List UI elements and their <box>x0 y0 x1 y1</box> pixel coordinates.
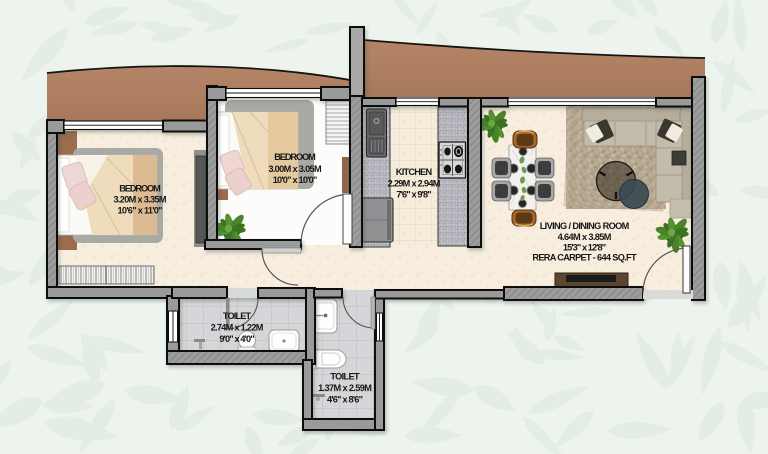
svg-text:3.20M x 3.35M: 3.20M x 3.35M <box>114 194 167 204</box>
svg-text:LIVING / DINING ROOM: LIVING / DINING ROOM <box>540 221 630 231</box>
svg-text:RERA CARPET - 644 SQ.FT: RERA CARPET - 644 SQ.FT <box>532 253 637 263</box>
svg-text:2.29M x 2.94M: 2.29M x 2.94M <box>388 178 441 188</box>
svg-text:TOILET: TOILET <box>330 372 360 382</box>
svg-text:15'3" x 12'8": 15'3" x 12'8" <box>563 242 606 252</box>
svg-text:10'6" x 11'0": 10'6" x 11'0" <box>118 205 163 215</box>
svg-text:3.00M x 3.05M: 3.00M x 3.05M <box>268 164 322 174</box>
svg-text:4.64M x 3.85M: 4.64M x 3.85M <box>558 232 612 242</box>
svg-text:10'0" x 10'0": 10'0" x 10'0" <box>273 175 318 185</box>
svg-text:9'0" x 4'0": 9'0" x 4'0" <box>219 334 254 344</box>
svg-text:KITCHEN: KITCHEN <box>396 167 433 177</box>
svg-text:4'6" x 8'6": 4'6" x 8'6" <box>327 395 363 405</box>
svg-text:2.74M x 1.22M: 2.74M x 1.22M <box>211 323 264 333</box>
svg-text:BEDROOM: BEDROOM <box>274 152 316 162</box>
svg-text:TOILET: TOILET <box>223 311 252 321</box>
svg-text:7'6" x 9'8": 7'6" x 9'8" <box>396 190 431 200</box>
svg-text:1.37M x 2.59M: 1.37M x 2.59M <box>318 383 372 393</box>
svg-text:BEDROOM: BEDROOM <box>119 184 161 194</box>
